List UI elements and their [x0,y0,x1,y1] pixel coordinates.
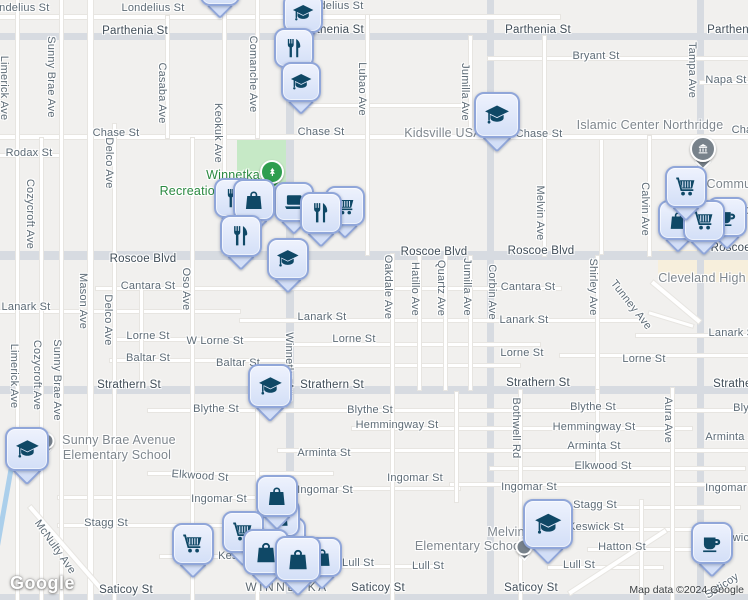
area-label: Elementary School [415,539,523,553]
street-label: Lull St [342,557,374,569]
area-label: Community [706,177,748,191]
restaurant-icon [300,192,342,234]
street-label: Ingomar St [705,482,748,494]
street-label: Lorne St [622,353,665,365]
street-label: Lubao Ave [356,62,368,116]
street-label: Sunny Brae Ave [51,339,63,421]
map-marker-coffee-cup[interactable] [691,522,733,564]
road [290,364,520,367]
street-label: Ingomar St [501,481,557,493]
street-label: Lanark St [2,301,51,313]
street-label: Hemmingway St [553,421,636,433]
street-label: W Lorne St [186,335,243,347]
street-label: Tunney Ave [608,278,654,332]
map-marker-hidden[interactable] [200,0,240,6]
street-label: Mason Ave [77,273,89,329]
street-label: Hatton St [598,541,646,553]
street-label: Comanche Ave [247,36,259,113]
map-marker-graduation-cap[interactable] [248,364,292,408]
street-label: Lull St [563,559,595,571]
street-label: Keokuk Ave [212,103,224,163]
street-label: Hemmingway St [356,419,439,431]
graduation-cap-icon [474,92,520,138]
map-marker-shopping-bag[interactable] [275,536,321,582]
street-label: Arminta St [567,440,620,452]
street-label: Parthenia St [707,24,748,36]
shopping-bag-icon [275,536,321,582]
street-label: Elkwood St [574,460,631,472]
street-label: Cantara St [501,281,556,293]
street-label: Sunny Brae Ave [45,36,57,118]
street-label: Ingomar St [191,493,247,505]
map-marker-graduation-cap[interactable] [267,238,309,280]
graduation-cap-icon [267,238,309,280]
street-label: Chase St [732,124,748,136]
street-label: Delco Ave [103,137,115,188]
street-label: Blythe St [193,403,239,415]
street-label: Chase St [516,128,563,140]
road [600,140,603,254]
map-marker-restaurant[interactable] [220,215,262,257]
road [16,0,19,600]
street-label: Strathern St [97,379,161,391]
area-label: Kidsville USA [404,126,482,140]
map-marker-shopping-cart[interactable] [172,523,214,565]
street-label: Parthenia St [505,24,571,36]
road [366,15,369,255]
road [455,392,458,502]
street-label: Strathern St [713,378,748,390]
area-label: Sunny Brae Avenue [62,433,176,447]
street-label: Strathern St [506,377,570,389]
map-marker-graduation-cap[interactable] [281,62,321,102]
graduation-cap-icon [5,427,49,471]
street-label: Limerick Ave [8,344,20,409]
street-label: Blythe St [733,402,748,414]
street-label: Lorne St [126,330,169,342]
street-label: Lorne St [500,347,543,359]
street-label: Saticoy St [99,584,153,596]
street-label: Cozycroft Ave [24,179,36,249]
street-label: Quartz Ave [435,260,447,316]
street-label: Limerick Ave [0,56,10,121]
map-marker-graduation-cap[interactable] [523,499,573,549]
area-label: Elementary School [63,448,171,462]
graduation-cap-icon [248,364,292,408]
road [290,343,540,346]
institution-pin[interactable] [690,136,716,162]
map-attribution: Map data ©2024 Google [629,584,744,596]
street-label: Oakdale Ave [382,255,394,319]
street-label: Ingomar St [297,484,353,496]
street-label: Keswick St [568,521,624,533]
shopping-cart-icon [665,166,707,208]
road [60,0,63,600]
street-label: Roscoe Blvd [110,253,177,265]
area-label: Melvin [487,525,524,539]
street-label: Melvin Ave [534,186,546,241]
hidden-icon [200,0,240,6]
map-marker-graduation-cap[interactable] [5,427,49,471]
street-label: Cozycroft Ave [31,340,43,410]
street-label: Rodax St [6,147,53,159]
coffee-cup-icon [691,522,733,564]
map-marker-graduation-cap[interactable] [474,92,520,138]
graduation-cap-icon [281,62,321,102]
street-label: Delco Ave [102,294,114,345]
street-label: Parthenia St [102,25,168,37]
street-label: Hatillo Ave [409,262,421,316]
road [300,104,470,107]
street-label: Lorne St [332,333,375,345]
street-label: Blythe St [570,401,616,413]
google-logo[interactable]: Google [10,573,75,594]
street-label: Londelius St [0,2,49,14]
street-label: Napa St [705,74,746,86]
street-label: Blythe St [347,404,393,416]
area-label: Cleveland High [658,271,746,285]
road [697,0,704,600]
street-label: Calvin Ave [639,182,651,236]
graduation-cap-icon [523,499,573,549]
street-label: Londelius St [122,2,185,14]
street-label: Lanark St [500,314,549,326]
street-label: Jumilla Ave [461,258,473,316]
street-label: Corbin Ave [486,264,498,320]
street-label: Bothwell Rd [510,398,522,459]
street-label: Stagg St [84,517,128,529]
street-label: Bryant St [572,50,619,62]
road [450,483,748,486]
street-label: Roscoe Blvd [508,245,575,257]
street-label: Arminta St [297,447,350,459]
street-label: Arminta St [705,431,748,443]
restaurant-icon [220,215,262,257]
street-label: Roscoe Blvd [401,246,468,258]
street-label: Jumilla Ave [459,63,471,121]
street-label: Lanark St [298,311,347,323]
shopping-cart-icon [172,523,214,565]
map-marker-restaurant[interactable] [300,192,342,234]
street-label: Casaba Ave [156,62,168,123]
street-label: Baltar St [126,352,170,364]
map-marker-shopping-cart[interactable] [665,166,707,208]
street-label: Saticoy St [504,582,558,594]
street-label: Saticoy St [351,582,405,594]
map-canvas[interactable]: Londelius StLondelius StLondelius StPart… [0,0,748,600]
street-label: Chase St [298,126,345,138]
street-label: Oso Ave [180,268,192,311]
street-label: Strathern St [300,379,364,391]
street-label: Lanark St [709,327,748,339]
street-label: Shirley Ave [587,258,599,315]
institution-pin-icon [690,136,716,162]
street-label: Stagg St [573,499,617,511]
street-label: Elkwood St [171,468,229,484]
street-label: Tampa Ave [686,42,698,98]
street-label: Ingomar St [387,472,443,484]
street-label: Aura Ave [662,397,674,443]
street-label: Cantara St [121,280,176,292]
area-label: Islamic Center Northridge [577,118,724,132]
street-label: Chase St [93,127,140,139]
road [0,15,560,19]
street-label: Lull St [412,560,444,572]
